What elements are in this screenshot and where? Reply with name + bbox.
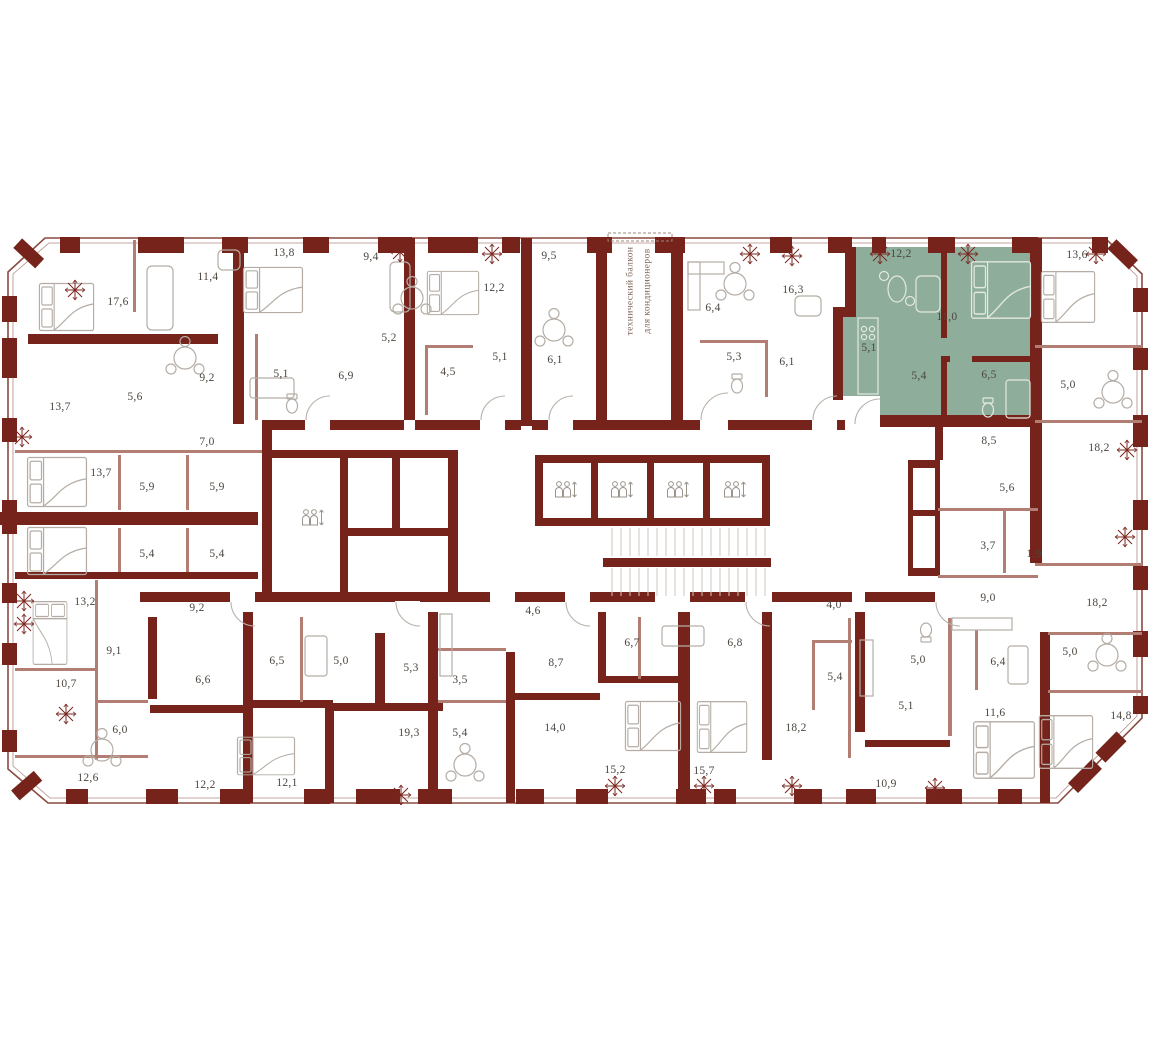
plant-star-icon: [782, 246, 802, 266]
area-label: 5,1: [898, 700, 913, 712]
area-label: 14,8: [1110, 710, 1131, 722]
area-label: 9,5: [541, 250, 556, 262]
area-label: 9,2: [189, 602, 204, 614]
area-label-highlighted-unit: 5,4: [911, 370, 926, 382]
area-label: 13,2: [74, 596, 95, 608]
kitchen-counter: [440, 614, 452, 676]
plant-star-icon: [958, 244, 978, 264]
area-label-highlighted-unit: 6,5: [981, 369, 996, 381]
area-label: 12,2: [483, 282, 504, 294]
area-label: 5,4: [827, 671, 842, 683]
area-label: 5,4: [139, 548, 154, 560]
area-label: 5,6: [127, 391, 142, 403]
area-label: 9,2: [199, 372, 214, 384]
plant-star-icon: [56, 704, 76, 724]
area-label: 5,0: [333, 655, 348, 667]
area-label: 13,7: [49, 401, 70, 413]
area-label: 17,6: [107, 296, 128, 308]
area-label: 15,7: [693, 765, 714, 777]
kitchen-counter: [952, 618, 1012, 630]
area-label: 6,0: [112, 724, 127, 736]
balcony-note-line2: для кондиционеров: [639, 247, 656, 336]
dining-table: [1088, 634, 1126, 672]
area-label: 7,0: [199, 436, 214, 448]
area-label: 1,9: [1026, 548, 1041, 560]
area-label: 12,1: [276, 777, 297, 789]
bed: [1041, 272, 1094, 323]
bed: [28, 458, 87, 507]
plant-star-icon: [391, 785, 411, 805]
floor-plan-canvas: [0, 0, 1150, 1040]
toilet: [921, 623, 932, 642]
area-label: 5,9: [209, 481, 224, 493]
bed: [427, 271, 478, 314]
area-label: 6,6: [195, 674, 210, 686]
dining-table: [716, 263, 754, 301]
technical-balcony-note: технический балкон для кондиционеров: [622, 247, 655, 336]
area-label: 18,2: [1088, 442, 1109, 454]
plant-star-icon: [14, 614, 34, 634]
floor-plan-page: 17,611,413,89,412,29,59,25,16,95,24,55,1…: [0, 0, 1150, 1040]
area-label: 8,5: [981, 435, 996, 447]
area-label: 5,4: [209, 548, 224, 560]
plant-star-icon: [14, 591, 34, 611]
bathtub: [1008, 646, 1028, 684]
elevator-icon: [612, 482, 633, 497]
dining-table: [535, 309, 573, 347]
armchair: [795, 296, 821, 316]
area-label: 5,0: [1062, 646, 1077, 658]
area-label: 5,9: [139, 481, 154, 493]
area-label: 6,9: [338, 370, 353, 382]
area-label: 5,3: [726, 351, 741, 363]
toilet: [732, 374, 743, 393]
area-label: 14,0: [544, 722, 565, 734]
area-label: 5,3: [403, 662, 418, 674]
bed: [33, 602, 67, 665]
area-label: 3,5: [452, 674, 467, 686]
plant-star-icon: [925, 778, 945, 798]
area-label: 4,0: [826, 599, 841, 611]
kitchen-counter: [688, 262, 724, 274]
bed: [697, 702, 746, 753]
elevator-icon: [668, 482, 689, 497]
bed: [625, 702, 680, 751]
balcony-note-line1: технический балкон: [622, 247, 639, 336]
area-label: 11,6: [985, 707, 1006, 719]
elevator-icon: [725, 482, 746, 497]
area-label: 5,1: [492, 351, 507, 363]
area-label-highlighted-unit: 5,1: [861, 342, 876, 354]
bed: [244, 267, 303, 312]
area-label: 5,6: [999, 482, 1014, 494]
area-label: 5,0: [910, 654, 925, 666]
plant-star-icon: [390, 242, 410, 262]
area-label: 6,7: [624, 637, 639, 649]
area-label: 6,1: [547, 354, 562, 366]
area-label: 5,1: [273, 368, 288, 380]
area-label: 12,2: [194, 779, 215, 791]
plant-star-icon: [482, 244, 502, 264]
plant-star-icon: [694, 776, 714, 796]
bed: [974, 722, 1035, 778]
area-label: 13,6: [1066, 249, 1087, 261]
area-label: 6,4: [990, 656, 1005, 668]
dining-table: [1094, 371, 1132, 409]
area-label-highlighted-unit: 12,2: [890, 248, 911, 260]
area-label: 5,0: [1060, 379, 1075, 391]
area-label: 9,0: [980, 592, 995, 604]
area-label: 10,9: [875, 778, 896, 790]
area-label: 5,4: [452, 727, 467, 739]
area-label: 15,2: [604, 764, 625, 776]
plant-star-icon: [740, 244, 760, 264]
plant-star-icon: [1115, 527, 1135, 547]
elevator-icon: [556, 482, 577, 497]
area-label: 6,5: [269, 655, 284, 667]
bed: [28, 528, 87, 575]
area-label: 13,8: [273, 247, 294, 259]
area-label: 18,2: [1086, 597, 1107, 609]
area-label: 4,5: [440, 366, 455, 378]
bathtub: [305, 636, 327, 676]
area-label: 13,7: [90, 467, 111, 479]
plant-star-icon: [1117, 440, 1137, 460]
plant-star-icon: [870, 244, 890, 264]
area-label: 6,8: [727, 637, 742, 649]
area-label: 18,2: [785, 722, 806, 734]
area-label: 10,7: [55, 678, 76, 690]
area-label: 6,4: [705, 302, 720, 314]
toilet: [287, 394, 298, 413]
area-label: 9,1: [106, 645, 121, 657]
area-label: 16,3: [782, 284, 803, 296]
sofa: [147, 266, 173, 330]
plant-star-icon: [12, 427, 32, 447]
plant-star-icon: [1086, 244, 1106, 264]
bed: [39, 284, 93, 331]
area-label: 9,4: [363, 251, 378, 263]
area-label: 19,3: [398, 727, 419, 739]
kitchen-counter: [688, 262, 700, 310]
area-label: 5,2: [381, 332, 396, 344]
plant-star-icon: [605, 776, 625, 796]
area-label-highlighted-unit: 11,0: [937, 311, 958, 323]
area-label: 8,7: [548, 657, 563, 669]
plant-star-icon: [782, 776, 802, 796]
area-label: 12,6: [77, 772, 98, 784]
area-label: 11,4: [198, 271, 219, 283]
dining-table: [446, 744, 484, 782]
area-label: 3,7: [980, 540, 995, 552]
area-label: 6,1: [779, 356, 794, 368]
plant-star-icon: [65, 280, 85, 300]
area-label: 4,6: [525, 605, 540, 617]
